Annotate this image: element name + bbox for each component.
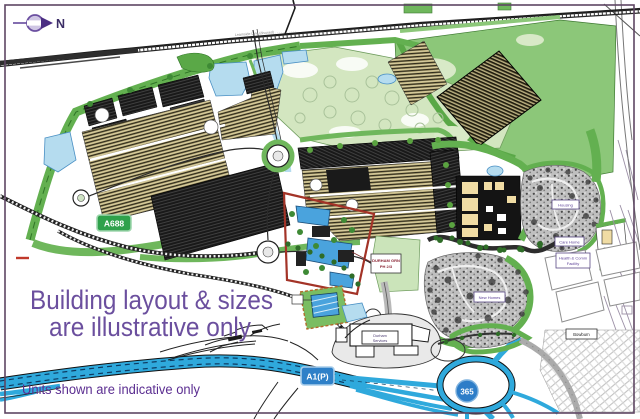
- svg-text:Units shown are indicative onl: Units shown are indicative only: [22, 382, 200, 397]
- svg-text:A688: A688: [104, 219, 125, 229]
- svg-text:Bowburn: Bowburn: [573, 332, 590, 337]
- svg-text:DURHAM GRN: DURHAM GRN: [372, 258, 400, 263]
- svg-text:Durham: Durham: [373, 334, 387, 338]
- svg-text:Health & Comm: Health & Comm: [559, 256, 588, 261]
- svg-text:A1(P): A1(P): [306, 372, 328, 382]
- svg-text:Services: Services: [373, 339, 388, 343]
- svg-text:are illustrative only: are illustrative only: [49, 312, 251, 342]
- svg-text:Facility: Facility: [567, 261, 579, 266]
- svg-text:Housing: Housing: [558, 203, 573, 208]
- svg-text:New Homes: New Homes: [479, 295, 501, 300]
- svg-text:N: N: [56, 17, 65, 31]
- svg-text:365: 365: [460, 388, 474, 397]
- svg-text:PH 2/3: PH 2/3: [380, 264, 393, 269]
- svg-text:Care Home: Care Home: [559, 240, 580, 245]
- svg-text:Building layout & sizes: Building layout & sizes: [30, 285, 273, 315]
